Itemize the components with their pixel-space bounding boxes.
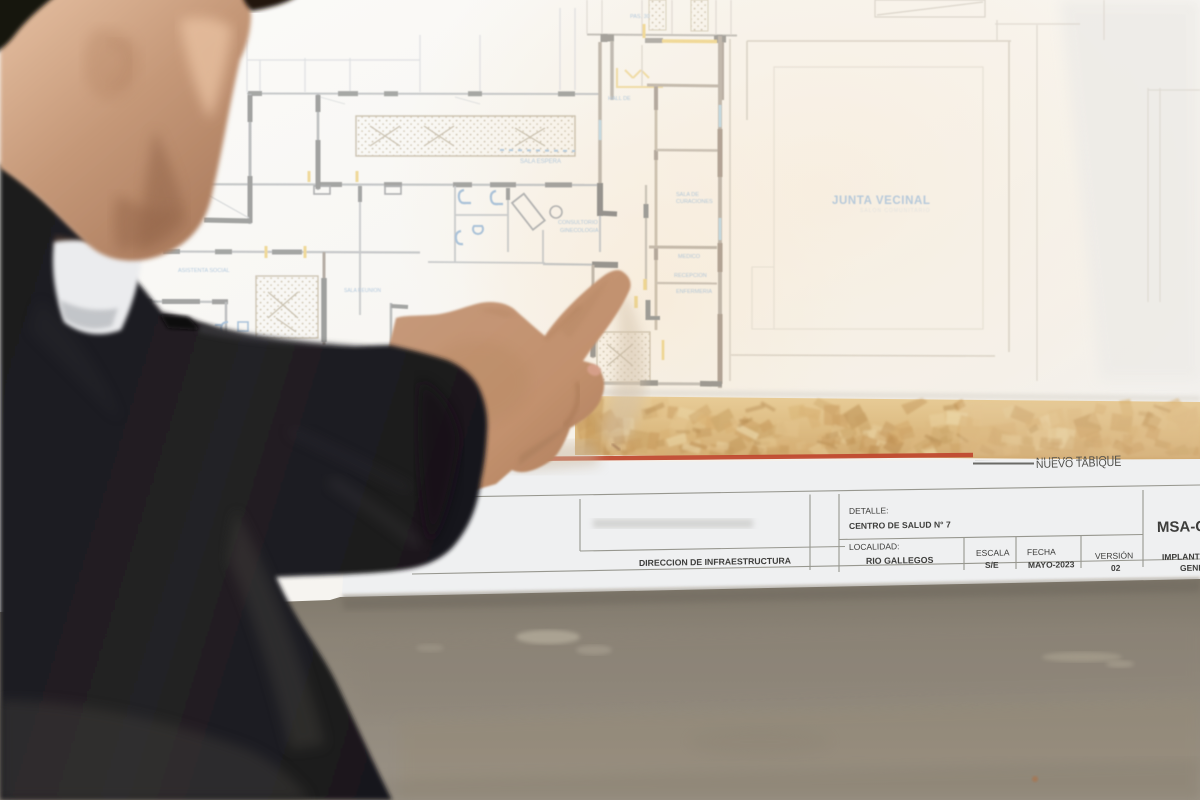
svg-text:GINECOLOGIA: GINECOLOGIA (560, 228, 599, 234)
svg-text:RECEPCION: RECEPCION (674, 273, 707, 279)
svg-text:MAYO-2023: MAYO-2023 (1028, 559, 1075, 570)
svg-text:DETALLE:: DETALLE: (849, 505, 889, 516)
svg-text:02: 02 (1111, 563, 1121, 573)
svg-text:CURACIONES: CURACIONES (676, 199, 713, 205)
svg-text:ENFERMERIA: ENFERMERIA (676, 289, 712, 295)
svg-text:CENTRO DE SALUD N° 7: CENTRO DE SALUD N° 7 (849, 519, 951, 531)
svg-text:SALA DE: SALA DE (676, 192, 699, 198)
svg-text:SALA ESPERA: SALA ESPERA (520, 159, 561, 165)
svg-text:GENE: GENE (1180, 563, 1200, 573)
svg-text:MSA-C: MSA-C (1157, 518, 1200, 536)
svg-text:S/E: S/E (985, 560, 999, 570)
svg-text:LOCALIDAD:: LOCALIDAD: (849, 541, 900, 552)
svg-text:CONSULTORIO: CONSULTORIO (558, 220, 599, 226)
svg-text:HALL DE: HALL DE (608, 96, 631, 102)
svg-text:ESCALA: ESCALA (976, 547, 1010, 558)
svg-text:SALON COMUNITARIO: SALON COMUNITARIO (860, 208, 931, 214)
svg-text:NUEVO TABIQUE: NUEVO TABIQUE (1036, 457, 1122, 471)
svg-text:FECHA: FECHA (1027, 547, 1056, 557)
svg-text:JUNTA VECINAL: JUNTA VECINAL (832, 195, 931, 207)
svg-text:MEDICO: MEDICO (678, 254, 701, 260)
svg-text:VERSIÓN: VERSIÓN (1095, 550, 1133, 561)
svg-text:PAS. 30: PAS. 30 (630, 14, 650, 20)
svg-text:SALA REUNION: SALA REUNION (344, 288, 381, 294)
svg-text:ASISTENTA SOCIAL: ASISTENTA SOCIAL (178, 268, 230, 274)
svg-text:IMPLANT: IMPLANT (1162, 551, 1200, 562)
svg-text:RIO GALLEGOS: RIO GALLEGOS (866, 555, 934, 566)
